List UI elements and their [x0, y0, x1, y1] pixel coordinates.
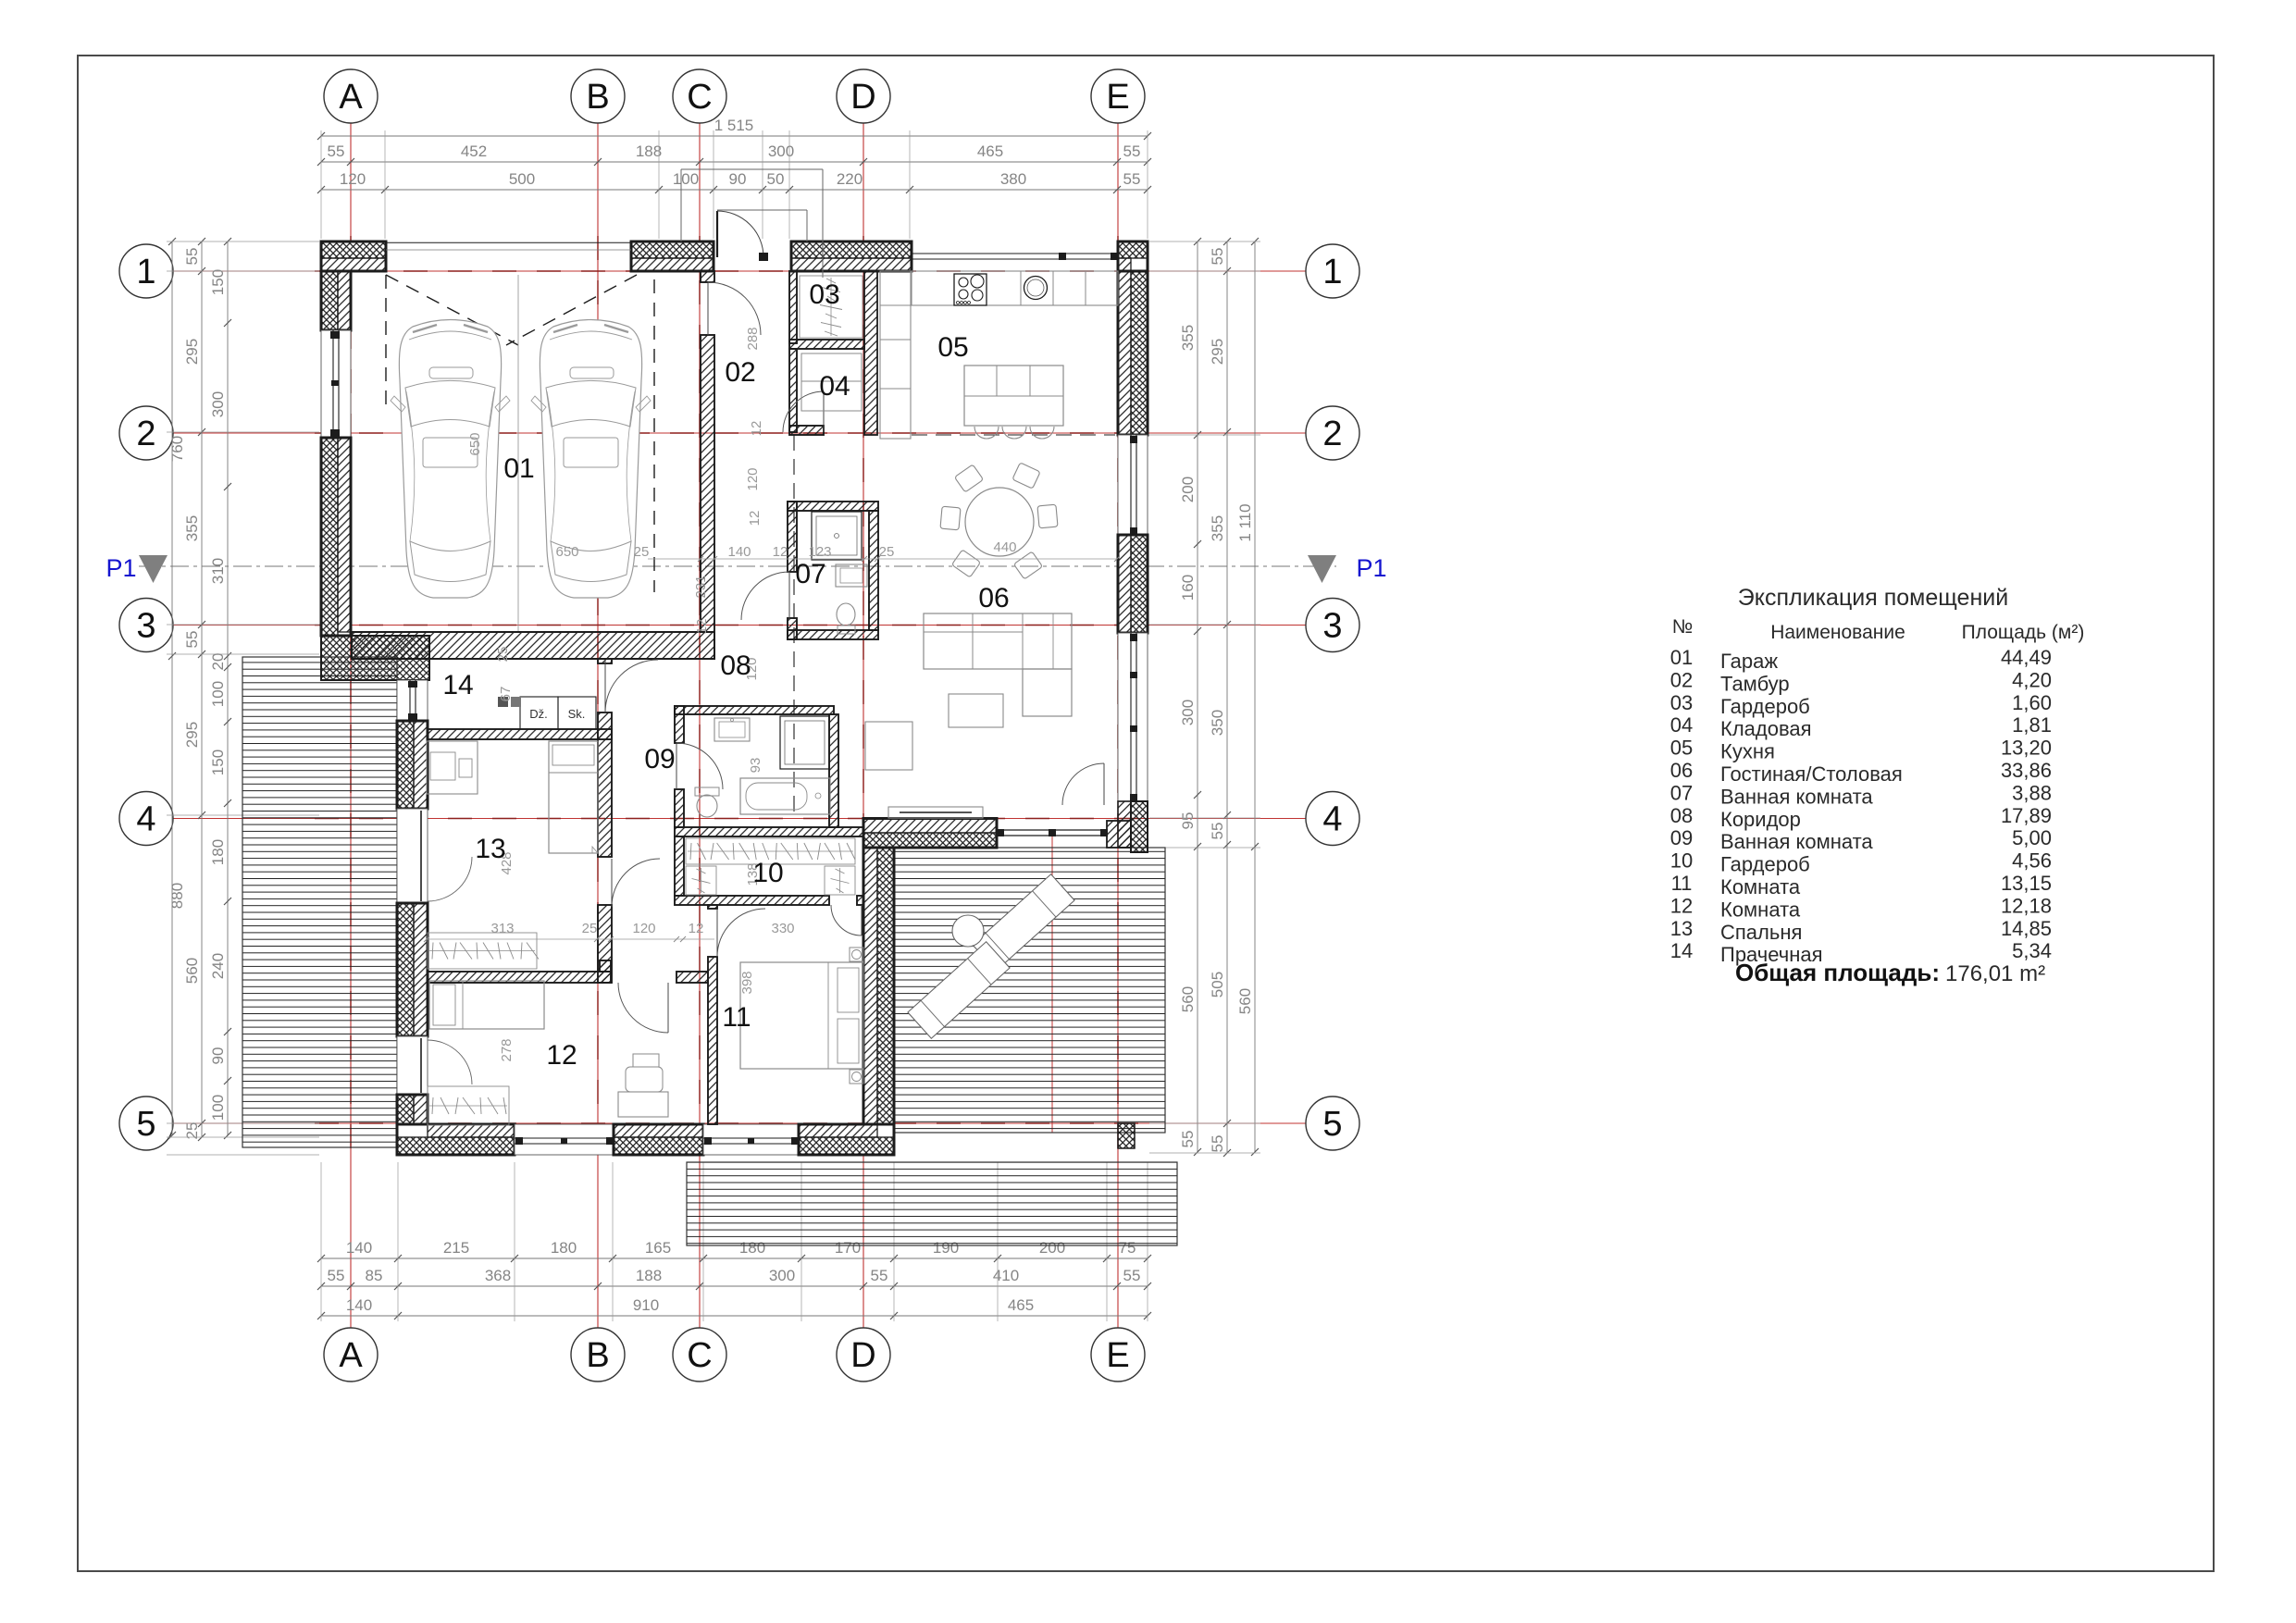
svg-text:12: 12 — [747, 511, 763, 527]
svg-text:55: 55 — [1209, 1135, 1226, 1153]
svg-text:14: 14 — [1670, 939, 1693, 962]
svg-text:A: A — [339, 78, 363, 117]
svg-text:08: 08 — [1670, 804, 1693, 827]
svg-text:10: 10 — [752, 858, 783, 888]
svg-text:55: 55 — [1179, 1131, 1197, 1148]
svg-text:25: 25 — [495, 647, 511, 663]
svg-text:Кухня: Кухня — [1720, 740, 1775, 763]
svg-text:20: 20 — [209, 653, 227, 671]
svg-text:760: 760 — [168, 436, 186, 462]
svg-text:330: 330 — [771, 921, 794, 936]
svg-text:300: 300 — [1179, 700, 1197, 725]
svg-text:Общая площадь:: Общая площадь: — [1735, 959, 1940, 986]
svg-text:10: 10 — [1670, 849, 1693, 873]
svg-text:5: 5 — [136, 1105, 155, 1144]
svg-text:910: 910 — [633, 1296, 659, 1314]
svg-text:04: 04 — [1670, 713, 1693, 737]
svg-text:295: 295 — [183, 339, 201, 365]
svg-text:01: 01 — [1670, 646, 1693, 669]
svg-text:188: 188 — [636, 142, 662, 160]
svg-text:44,49: 44,49 — [2001, 646, 2052, 669]
svg-text:Dž.: Dž. — [529, 707, 548, 721]
svg-text:350: 350 — [1209, 710, 1226, 736]
svg-text:180: 180 — [551, 1239, 577, 1257]
svg-text:02: 02 — [1670, 668, 1693, 691]
svg-text:440: 440 — [993, 539, 1016, 555]
svg-text:25: 25 — [879, 544, 895, 560]
svg-text:Гараж: Гараж — [1720, 650, 1778, 673]
svg-text:310: 310 — [209, 558, 227, 584]
svg-text:55: 55 — [1123, 170, 1141, 188]
svg-text:Спальня: Спальня — [1720, 921, 1802, 944]
svg-text:176,01 m²: 176,01 m² — [1945, 961, 2045, 986]
svg-text:02: 02 — [725, 357, 755, 388]
svg-text:55: 55 — [871, 1267, 888, 1284]
svg-text:90: 90 — [209, 1047, 227, 1065]
svg-text:C: C — [687, 78, 712, 117]
svg-text:55: 55 — [328, 1267, 345, 1284]
svg-text:B: B — [586, 78, 609, 117]
svg-text:E: E — [1106, 78, 1129, 117]
svg-text:09: 09 — [644, 744, 675, 774]
svg-text:12: 12 — [694, 619, 710, 635]
svg-text:E: E — [1106, 1336, 1129, 1375]
svg-text:D: D — [850, 78, 875, 117]
svg-text:55: 55 — [183, 248, 201, 266]
svg-text:240: 240 — [209, 953, 227, 979]
svg-text:55: 55 — [1209, 248, 1226, 266]
svg-text:1: 1 — [136, 253, 155, 291]
svg-text:Гостиная/Столовая: Гостиная/Столовая — [1720, 762, 1903, 786]
svg-text:11: 11 — [722, 1002, 751, 1033]
svg-text:Комната: Комната — [1720, 898, 1801, 921]
svg-text:188: 188 — [636, 1267, 662, 1284]
svg-text:Комната: Комната — [1720, 875, 1801, 898]
svg-text:465: 465 — [977, 142, 1003, 160]
svg-text:123: 123 — [808, 544, 831, 560]
svg-text:120: 120 — [745, 467, 761, 490]
svg-text:D: D — [850, 1336, 875, 1375]
svg-text:300: 300 — [209, 391, 227, 417]
svg-text:150: 150 — [209, 750, 227, 775]
svg-text:560: 560 — [1236, 988, 1254, 1014]
svg-text:180: 180 — [209, 839, 227, 865]
svg-text:13: 13 — [475, 834, 505, 864]
svg-text:55: 55 — [1123, 142, 1141, 160]
svg-text:295: 295 — [183, 722, 201, 748]
svg-text:165: 165 — [645, 1239, 671, 1257]
svg-text:Гардероб: Гардероб — [1720, 853, 1810, 876]
svg-text:140: 140 — [346, 1296, 372, 1314]
svg-text:120: 120 — [340, 170, 366, 188]
svg-text:3: 3 — [1322, 607, 1342, 646]
svg-text:100: 100 — [673, 170, 699, 188]
svg-text:150: 150 — [209, 269, 227, 295]
svg-text:2: 2 — [1322, 415, 1342, 453]
svg-text:452: 452 — [461, 142, 487, 160]
svg-text:1,81: 1,81 — [2012, 713, 2052, 737]
svg-text:355: 355 — [1209, 515, 1226, 541]
svg-text:06: 06 — [1670, 759, 1693, 782]
svg-text:3,88: 3,88 — [2012, 781, 2052, 804]
svg-text:13,20: 13,20 — [2001, 737, 2052, 760]
svg-text:300: 300 — [769, 1267, 795, 1284]
svg-text:11: 11 — [1671, 872, 1693, 895]
svg-text:560: 560 — [1179, 986, 1197, 1012]
svg-text:12: 12 — [1670, 894, 1693, 917]
svg-text:Тамбур: Тамбур — [1720, 672, 1790, 695]
svg-text:93: 93 — [748, 758, 763, 774]
svg-text:50: 50 — [767, 170, 785, 188]
svg-text:1,60: 1,60 — [2012, 691, 2052, 714]
svg-text:160: 160 — [1179, 575, 1197, 601]
svg-text:398: 398 — [739, 971, 755, 994]
svg-text:09: 09 — [1670, 826, 1693, 849]
svg-text:08: 08 — [720, 650, 751, 681]
svg-text:67: 67 — [498, 687, 514, 702]
svg-text:465: 465 — [1008, 1296, 1034, 1314]
svg-text:25: 25 — [582, 921, 598, 936]
svg-text:Ванная комната: Ванная комната — [1720, 785, 1873, 808]
svg-text:880: 880 — [168, 883, 186, 909]
svg-text:12: 12 — [773, 544, 788, 560]
svg-text:Наименование: Наименование — [1770, 622, 1905, 643]
svg-text:07: 07 — [795, 559, 825, 589]
svg-text:Ванная комната: Ванная комната — [1720, 830, 1873, 853]
svg-text:1 110: 1 110 — [1236, 503, 1254, 541]
svg-text:№: № — [1672, 616, 1694, 638]
svg-text:1: 1 — [1322, 253, 1342, 291]
svg-text:05: 05 — [1670, 737, 1693, 760]
svg-text:07: 07 — [1670, 781, 1693, 804]
svg-text:505: 505 — [1209, 972, 1226, 997]
svg-text:Гардероб: Гардероб — [1720, 695, 1810, 718]
svg-text:P1: P1 — [105, 554, 136, 582]
svg-text:3: 3 — [136, 607, 155, 646]
svg-text:5: 5 — [1322, 1105, 1342, 1144]
svg-text:300: 300 — [768, 142, 794, 160]
svg-text:4,56: 4,56 — [2012, 849, 2052, 873]
svg-text:4: 4 — [1322, 800, 1342, 839]
svg-text:14: 14 — [442, 670, 473, 700]
svg-text:12: 12 — [749, 421, 764, 437]
svg-text:200: 200 — [1179, 477, 1197, 502]
svg-text:Площадь (м²): Площадь (м²) — [1962, 622, 2085, 643]
svg-text:5,00: 5,00 — [2012, 826, 2052, 849]
svg-text:278: 278 — [499, 1038, 515, 1061]
svg-text:90: 90 — [729, 170, 747, 188]
svg-text:560: 560 — [183, 958, 201, 984]
svg-text:355: 355 — [1179, 325, 1197, 351]
svg-text:25: 25 — [634, 544, 650, 560]
svg-text:215: 215 — [443, 1239, 469, 1257]
svg-text:140: 140 — [346, 1239, 372, 1257]
svg-text:55: 55 — [1209, 823, 1226, 840]
svg-text:2: 2 — [136, 415, 155, 453]
svg-text:95: 95 — [1179, 812, 1197, 830]
svg-text:33,86: 33,86 — [2001, 759, 2052, 782]
svg-text:17,89: 17,89 — [2001, 804, 2052, 827]
svg-text:650: 650 — [555, 544, 578, 560]
svg-text:220: 220 — [837, 170, 863, 188]
svg-text:C: C — [687, 1336, 712, 1375]
svg-text:12,18: 12,18 — [2001, 894, 2052, 917]
svg-text:Кладовая: Кладовая — [1720, 717, 1812, 740]
svg-text:1 515: 1 515 — [714, 117, 754, 134]
svg-text:05: 05 — [937, 332, 968, 363]
svg-text:A: A — [339, 1336, 363, 1375]
svg-text:380: 380 — [1000, 170, 1026, 188]
svg-text:500: 500 — [509, 170, 535, 188]
svg-text:13,15: 13,15 — [2001, 872, 2052, 895]
svg-text:355: 355 — [183, 515, 201, 541]
svg-text:Sk.: Sk. — [568, 707, 586, 721]
svg-text:120: 120 — [632, 921, 655, 936]
svg-text:4,20: 4,20 — [2012, 668, 2052, 691]
svg-text:4: 4 — [136, 800, 155, 839]
svg-text:5,34: 5,34 — [2012, 939, 2052, 962]
svg-text:55: 55 — [328, 142, 345, 160]
svg-text:368: 368 — [485, 1267, 511, 1284]
svg-text:03: 03 — [1670, 691, 1693, 714]
svg-text:288: 288 — [745, 327, 761, 350]
svg-text:P1: P1 — [1356, 554, 1386, 582]
svg-text:13: 13 — [1670, 917, 1693, 940]
svg-text:313: 313 — [490, 921, 514, 936]
svg-text:55: 55 — [183, 631, 201, 649]
svg-text:12: 12 — [546, 1040, 577, 1071]
svg-text:85: 85 — [366, 1267, 383, 1284]
svg-text:06: 06 — [978, 583, 1009, 613]
svg-text:295: 295 — [1209, 339, 1226, 365]
svg-text:B: B — [586, 1336, 609, 1375]
svg-text:04: 04 — [819, 371, 850, 402]
svg-text:14,85: 14,85 — [2001, 917, 2052, 940]
svg-text:100: 100 — [209, 1095, 227, 1121]
svg-text:100: 100 — [209, 681, 227, 707]
svg-text:650: 650 — [467, 432, 483, 455]
svg-text:410: 410 — [993, 1267, 1019, 1284]
svg-text:25: 25 — [183, 1122, 201, 1140]
svg-text:03: 03 — [809, 279, 839, 310]
svg-text:Коридор: Коридор — [1720, 808, 1801, 831]
svg-text:231: 231 — [693, 575, 709, 598]
svg-text:55: 55 — [1123, 1267, 1141, 1284]
svg-text:12: 12 — [689, 921, 704, 936]
svg-text:140: 140 — [727, 544, 751, 560]
svg-text:Экспликация помещений: Экспликация помещений — [1738, 585, 2008, 611]
svg-text:01: 01 — [503, 453, 534, 484]
